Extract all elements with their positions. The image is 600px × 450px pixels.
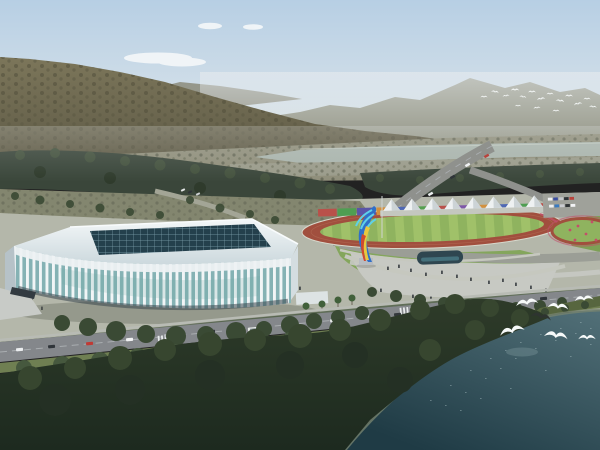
car: [548, 198, 553, 201]
car: [559, 197, 564, 200]
person: [425, 273, 427, 276]
cloud: [158, 58, 206, 67]
person: [502, 279, 504, 282]
scene-svg: [0, 0, 600, 450]
person: [398, 265, 400, 268]
car: [553, 197, 558, 200]
palm: [335, 297, 342, 304]
palm: [349, 295, 356, 302]
person: [470, 278, 472, 281]
person: [488, 281, 490, 284]
rendering-canvas: [0, 0, 600, 450]
person: [456, 275, 458, 278]
person: [410, 269, 412, 272]
cloud: [198, 23, 222, 29]
tree: [306, 313, 322, 329]
reflecting-pool: [417, 250, 463, 265]
car: [554, 204, 559, 207]
person: [412, 295, 414, 298]
tree: [106, 321, 126, 341]
cloud: [243, 24, 263, 30]
parking-lot: [543, 192, 600, 218]
car: [126, 338, 133, 342]
tree: [54, 315, 70, 331]
tree: [355, 306, 369, 320]
wall-panel: [337, 208, 356, 216]
water-glow: [506, 348, 538, 357]
midground-haze: [0, 126, 600, 182]
person: [441, 271, 443, 274]
car: [560, 204, 565, 207]
person: [515, 283, 517, 286]
car: [571, 204, 576, 207]
palm: [319, 301, 326, 308]
wall-panel: [318, 209, 337, 217]
person: [387, 267, 389, 270]
car: [48, 345, 55, 349]
person: [380, 289, 382, 292]
tree: [137, 325, 155, 343]
tree: [79, 318, 97, 336]
tree: [390, 290, 402, 302]
person: [530, 286, 532, 289]
car: [569, 197, 574, 200]
car: [564, 197, 569, 200]
tree: [367, 287, 377, 297]
person: [299, 287, 301, 290]
car: [16, 348, 23, 352]
car: [565, 204, 570, 207]
car: [549, 205, 554, 208]
car: [86, 342, 93, 346]
palm: [303, 303, 310, 310]
car: [540, 297, 547, 301]
